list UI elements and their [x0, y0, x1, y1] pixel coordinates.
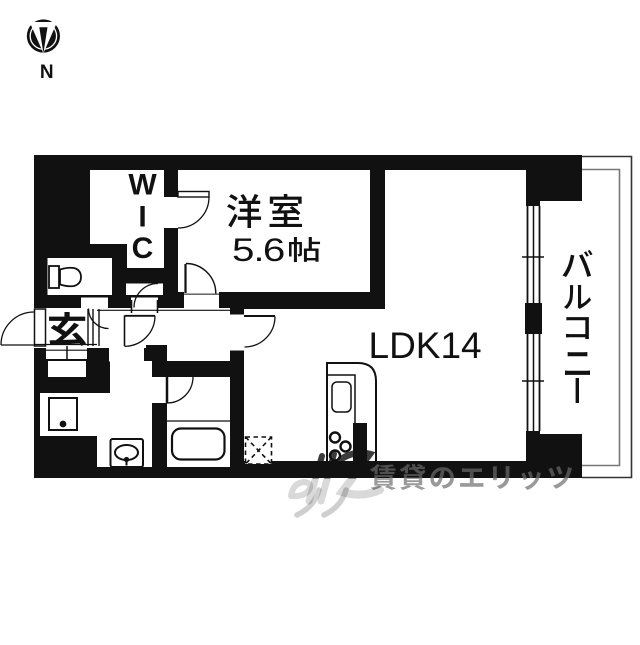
svg-text:I: I: [138, 201, 146, 234]
svg-text:C: C: [132, 232, 154, 265]
svg-text:LDK14: LDK14: [369, 325, 482, 366]
svg-text:W: W: [128, 169, 157, 202]
svg-text:5.6: 5.6: [232, 232, 285, 268]
svg-text:N: N: [40, 62, 54, 83]
